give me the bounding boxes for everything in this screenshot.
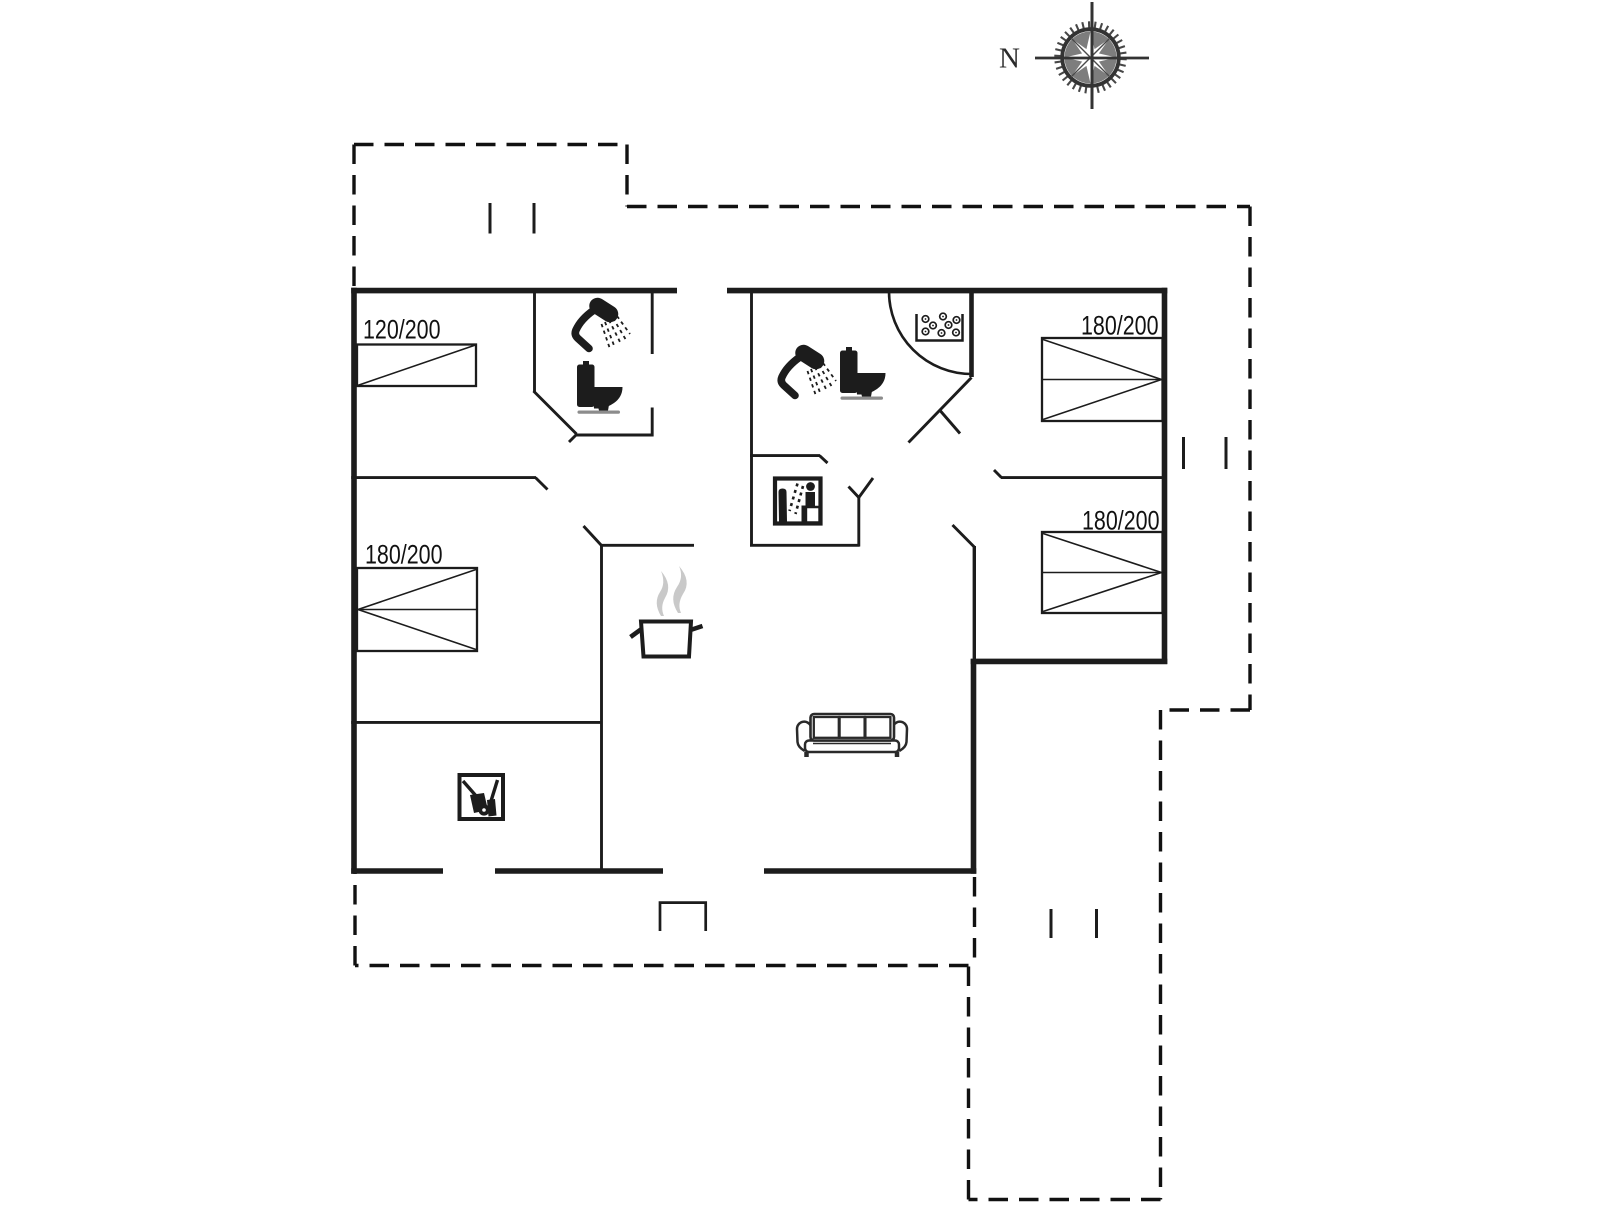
svg-text:120/200: 120/200 [363,315,441,345]
svg-text:180/200: 180/200 [365,540,443,570]
svg-text:N: N [999,43,1020,75]
svg-text:180/200: 180/200 [1081,311,1159,341]
svg-text:180/200: 180/200 [1082,506,1160,536]
